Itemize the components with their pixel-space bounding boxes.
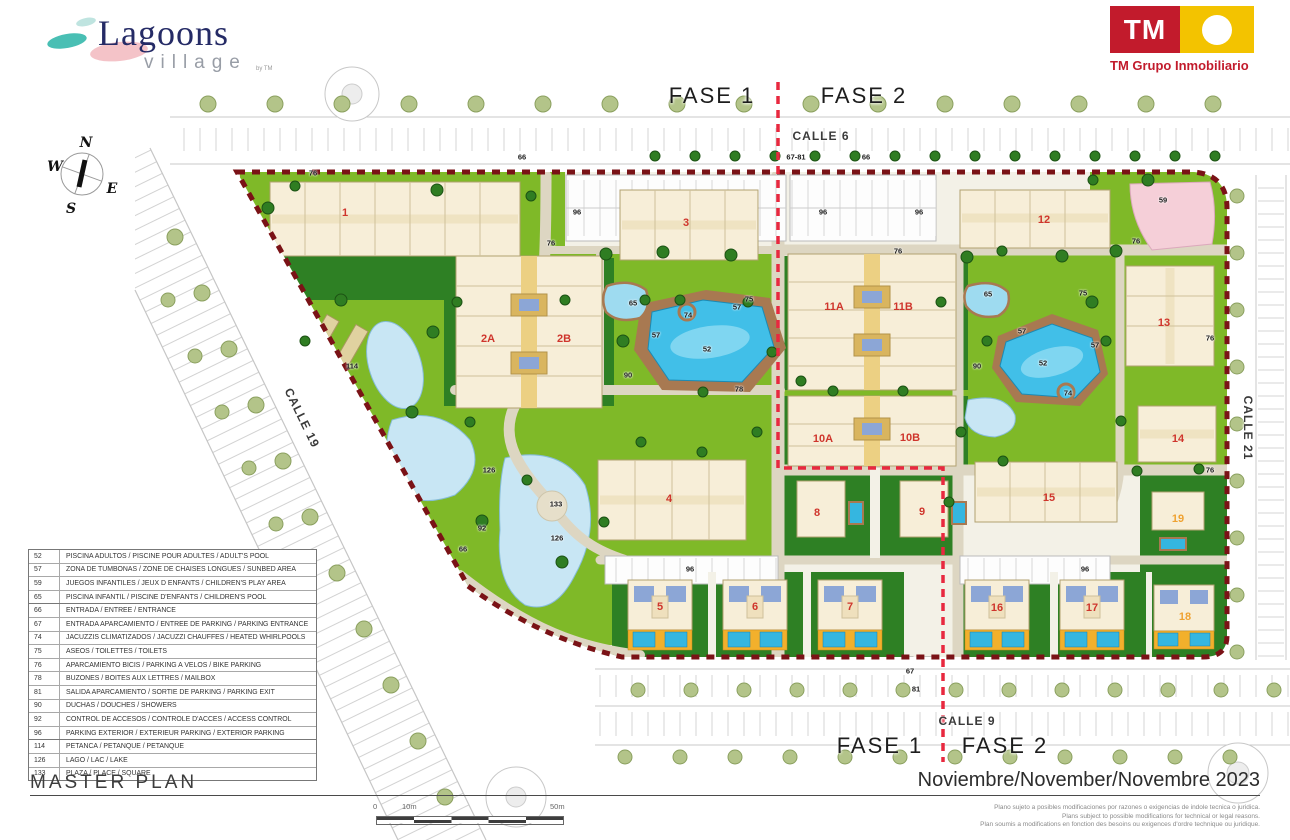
- legend-text: PISCINA INFANTIL / PISCINE D'ENFANTS / C…: [60, 594, 266, 601]
- legend-row-92: 92CONTROL DE ACCESOS / CONTROLE D'ACCES …: [29, 712, 316, 726]
- compass-w: W: [47, 159, 64, 175]
- legend-num: 74: [29, 632, 60, 645]
- legend-num: 75: [29, 645, 60, 658]
- street-label-calle6: CALLE 6: [792, 129, 849, 143]
- legend-text: BUZONES / BOITES AUX LETTRES / MAILBOX: [60, 675, 215, 682]
- legend-text: PARKING EXTERIOR / EXTERIEUR PARKING / E…: [60, 730, 285, 737]
- disclaimer-es: Plano sujeto a posibles modificaciones p…: [560, 804, 1260, 813]
- legend-row-76: 76APARCAMIENTO BICIS / PARKING A VELOS /…: [29, 658, 316, 672]
- fase2-bottom-label: FASE 2: [962, 733, 1049, 759]
- legend-num: 52: [29, 550, 60, 563]
- compass-rose: N W E S: [46, 126, 126, 221]
- legend-text: JACUZZIS CLIMATIZADOS / JACUZZI CHAUFFES…: [60, 634, 305, 641]
- legend-num: 59: [29, 577, 60, 590]
- legend-num: 92: [29, 713, 60, 726]
- legend-num: 66: [29, 604, 60, 617]
- legend-text: SALIDA APARCAMIENTO / SORTIE DE PARKING …: [60, 689, 275, 696]
- legend-row-59: 59JUEGOS INFANTILES / JEUX D ENFANTS / C…: [29, 576, 316, 590]
- legend-row-75: 75ASEOS / TOILETTES / TOILETS: [29, 644, 316, 658]
- legend-num: 96: [29, 727, 60, 740]
- legend-row-65: 65PISCINA INFANTIL / PISCINE D'ENFANTS /…: [29, 590, 316, 604]
- site-interior: [230, 165, 1235, 666]
- legend-text: ZONA DE TUMBONAS / ZONE DE CHAISES LONGU…: [60, 566, 296, 573]
- legend-num: 76: [29, 659, 60, 672]
- legend-text: JUEGOS INFANTILES / JEUX D ENFANTS / CHI…: [60, 580, 286, 587]
- scale-fifty: 50m: [550, 802, 565, 811]
- legend-row-96: 96PARKING EXTERIOR / EXTERIEUR PARKING /…: [29, 726, 316, 740]
- legend-row-126: 126LAGO / LAC / LAKE: [29, 753, 316, 767]
- street-label-calle21: CALLE 21: [1241, 396, 1255, 461]
- compass-n: N: [79, 135, 94, 151]
- scale-bar: 0 10m 50m: [374, 802, 574, 834]
- compass-s: S: [66, 201, 76, 217]
- legend-num: 65: [29, 591, 60, 604]
- legend-text: LAGO / LAC / LAKE: [60, 757, 128, 764]
- legend-row-52: 52PISCINA ADULTOS / PISCINE POUR ADULTES…: [29, 550, 316, 563]
- legend-row-90: 90DUCHAS / DOUCHES / SHOWERS: [29, 699, 316, 713]
- legend-text: PETANCA / PETANQUE / PETANQUE: [60, 743, 184, 750]
- legend-text: ENTRADA APARCAMIENTO / ENTREE DE PARKING…: [60, 621, 308, 628]
- street-label-calle9: CALLE 9: [938, 714, 995, 728]
- master-plan-canvas: N W E S Lagoons village by TM TM TM Grup…: [0, 0, 1290, 840]
- scale-ten: 10m: [402, 802, 417, 811]
- compass-e: E: [106, 181, 118, 197]
- disclaimer-text: Plano sujeto a posibles modificaciones p…: [560, 804, 1260, 830]
- logo-title: Lagoons: [98, 12, 229, 54]
- legend-text: ASEOS / TOILETTES / TOILETS: [60, 648, 167, 655]
- fase2-top-label: FASE 2: [821, 83, 908, 109]
- logo-byline: by TM: [256, 66, 273, 72]
- logo-subtitle: village: [144, 52, 247, 74]
- tm-company-name: TM Grupo Inmobiliario: [1110, 58, 1262, 73]
- legend-row-74: 74JACUZZIS CLIMATIZADOS / JACUZZI CHAUFF…: [29, 631, 316, 645]
- legend-text: DUCHAS / DOUCHES / SHOWERS: [60, 702, 177, 709]
- tm-grupo-logo: TM TM Grupo Inmobiliario: [1110, 6, 1262, 82]
- tm-yellow-square: [1180, 6, 1254, 53]
- legend-text: CONTROL DE ACCESOS / CONTROLE D'ACCES / …: [60, 716, 291, 723]
- legend-text: APARCAMIENTO BICIS / PARKING A VELOS / B…: [60, 662, 261, 669]
- scale-bar-graphic: [376, 816, 564, 825]
- right-road: [1256, 175, 1286, 660]
- legend-row-78: 78BUZONES / BOITES AUX LETTRES / MAILBOX: [29, 671, 316, 685]
- legend-row-66: 66ENTRADA / ENTREE / ENTRANCE: [29, 603, 316, 617]
- legend-table: 52PISCINA ADULTOS / PISCINE POUR ADULTES…: [28, 549, 317, 781]
- scale-zero: 0: [373, 802, 377, 811]
- legend-num: 90: [29, 700, 60, 713]
- legend-num: 126: [29, 754, 60, 767]
- master-plan-title: MASTER PLAN: [30, 772, 197, 794]
- tm-circle-icon: [1202, 15, 1232, 45]
- legend-row-67: 67ENTRADA APARCAMIENTO / ENTREE DE PARKI…: [29, 617, 316, 631]
- footer-rule: [30, 795, 1260, 796]
- legend-num: 57: [29, 564, 60, 577]
- legend-num: 78: [29, 672, 60, 685]
- legend-row-81: 81SALIDA APARCAMIENTO / SORTIE DE PARKIN…: [29, 685, 316, 699]
- legend-row-114: 114PETANCA / PETANQUE / PETANQUE: [29, 739, 316, 753]
- legend-num: 81: [29, 686, 60, 699]
- legend-text: ENTRADA / ENTREE / ENTRANCE: [60, 607, 176, 614]
- disclaimer-en: Plans subject to possible modifications …: [560, 813, 1260, 822]
- legend-row-57: 57ZONA DE TUMBONAS / ZONE DE CHAISES LON…: [29, 563, 316, 577]
- lagoons-village-logo: Lagoons village by TM: [40, 6, 280, 82]
- logo-lightteal-ellipse: [75, 16, 96, 28]
- legend-num: 67: [29, 618, 60, 631]
- logo-teal-ellipse: [46, 31, 88, 52]
- tm-red-square: TM: [1110, 6, 1180, 53]
- legend-num: 114: [29, 740, 60, 753]
- legend-text: PISCINA ADULTOS / PISCINE POUR ADULTES /…: [60, 553, 269, 560]
- disclaimer-fr: Plan soumis a modifications en fonction …: [560, 821, 1260, 830]
- plan-date: Noviembre/November/Novembre 2023: [700, 769, 1260, 792]
- fase1-bottom-label: FASE 1: [837, 733, 924, 759]
- fase1-top-label: FASE 1: [669, 83, 756, 109]
